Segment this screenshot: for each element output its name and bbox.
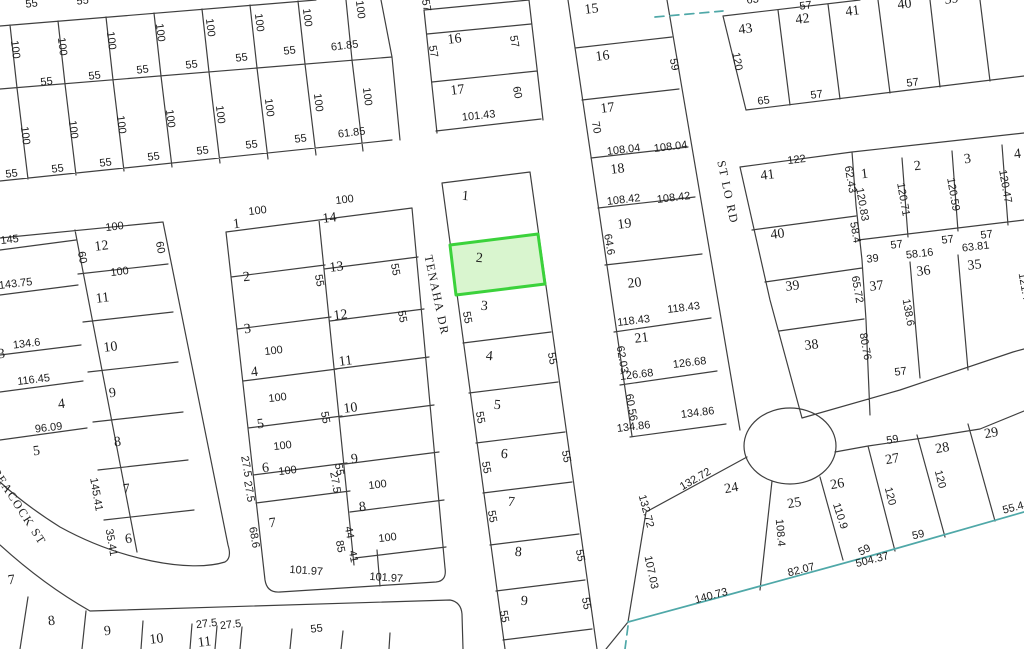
dimension-label: 60 [153, 240, 167, 254]
dimension-label: 57 [894, 365, 908, 378]
dimension-label: 55 [310, 622, 324, 635]
dimension-label: 44 [342, 525, 356, 539]
lot-number-label: 19 [617, 216, 633, 233]
lot-number-label: 12 [333, 307, 349, 324]
dimension-label: 57 [810, 88, 824, 101]
lot-number-label: 21 [634, 330, 650, 347]
lot-number-label: 3 [480, 299, 488, 315]
lot-number-label: 11 [338, 353, 353, 370]
dimension-label: 100 [335, 193, 355, 207]
dimension-label: 100 [353, 0, 367, 19]
dimension-label: 55 [294, 132, 308, 145]
lot-number-label: 5 [493, 398, 501, 414]
dimension-label: 100 [110, 265, 130, 279]
dimension-label: 57 [890, 238, 904, 251]
dimension-label: 100 [378, 531, 398, 545]
lot-number-label: 39 [785, 278, 801, 295]
dimension-label: 55 [136, 63, 150, 76]
dimension-label: 70 [589, 120, 603, 134]
dimension-label: 60 [510, 85, 524, 99]
dimension-label: 145 [0, 233, 19, 247]
lot-number-label: 8 [514, 545, 522, 561]
lot-number-label: 43 [738, 21, 754, 38]
lot-number-label: 26 [829, 476, 845, 493]
dimension-label: 65 [757, 94, 771, 107]
dimension-label: 100 [360, 87, 374, 107]
dimension-label: 55 [196, 144, 210, 157]
dimension-label: 100 [248, 204, 268, 218]
lot-number-label: 13 [329, 259, 345, 276]
dimension-label: 100 [18, 126, 32, 146]
dimension-label: 55 [88, 69, 102, 82]
dimension-label: 59 [885, 433, 899, 447]
lot-number-label: 17 [600, 100, 616, 117]
dimension-label: 59 [667, 57, 681, 71]
lot-number-label: 25 [786, 495, 802, 512]
dimension-label: 55 [40, 75, 54, 88]
dimension-label: 55 [51, 162, 65, 175]
dimension-label: 57 [941, 233, 955, 246]
lot-number-label: 40 [770, 226, 786, 243]
dimension-label: 55 [245, 138, 259, 151]
dimension-label: 55 [147, 150, 161, 163]
dimension-label: 100 [8, 40, 22, 60]
lot-number-label: 11 [95, 290, 110, 307]
lot-number-label: 2 [475, 251, 483, 267]
lot-number-label: 17 [450, 82, 466, 99]
dimension-label: 100 [368, 478, 388, 492]
dimension-label: 55 [497, 609, 511, 623]
lot-number-label: 16 [595, 48, 611, 65]
dimension-label: 55 [579, 596, 593, 610]
lot-number-label: 15 [584, 1, 600, 18]
lot-number-label: 28 [934, 440, 950, 457]
lot-number-label: 7 [507, 495, 515, 511]
dimension-label: 100 [153, 23, 167, 43]
lot-number-label: 27 [884, 451, 900, 468]
lot-number-label: 10 [343, 400, 359, 417]
dimension-label: 55 [479, 460, 493, 474]
dimension-label: 100 [264, 344, 284, 358]
lot-number-label: 4 [485, 349, 493, 365]
dimension-label: 100 [268, 391, 288, 405]
dimension-label: 57 [906, 76, 920, 89]
dimension-label: 100 [114, 115, 128, 135]
dimension-label: 55 [283, 44, 297, 57]
dimension-label: 55 [559, 449, 573, 463]
dimension-label: 100 [163, 109, 177, 129]
dimension-label: 55 [5, 167, 19, 180]
lot-number-label: 41 [760, 167, 776, 184]
dimension-label: 100 [273, 439, 293, 453]
lot-number-label: 1 [461, 189, 469, 205]
lot-number-label: 20 [627, 275, 643, 292]
dimension-label: 41 [346, 549, 360, 563]
lot-number-label: 16 [447, 31, 463, 48]
dimension-label: 60 [75, 250, 89, 264]
lot-number-label: 18 [610, 161, 626, 178]
dimension-label: 55 [485, 509, 499, 523]
dimension-label: 100 [213, 105, 227, 125]
dimension-label: 55 [318, 410, 332, 424]
dimension-label: 100 [104, 31, 118, 51]
dimension-label: 100 [311, 93, 325, 113]
dimension-label: 100 [262, 98, 276, 118]
highlighted-parcel-lot-2[interactable] [450, 234, 545, 295]
dimension-label: 55 [185, 58, 199, 71]
dimension-label: 55 [545, 351, 559, 365]
dimension-label: 101.97 [369, 571, 403, 585]
dimension-label: 100 [300, 8, 314, 28]
dimension-label: 55 [573, 548, 587, 562]
dimension-label: 55 [25, 0, 39, 11]
lot-number-label: 10 [103, 339, 119, 356]
dimension-label: 57 [507, 34, 521, 48]
lot-number-label: 40 [897, 0, 913, 13]
dimension-label: 39 [866, 252, 880, 265]
dimension-label: 101.97 [289, 564, 323, 578]
dimension-label: 55 [235, 51, 249, 64]
dimension-label: 122 [787, 153, 807, 167]
lot-number-label: 6 [500, 447, 508, 463]
dimension-label: 100 [55, 37, 69, 57]
dimension-label: 100 [278, 464, 298, 478]
lot-number-label: 37 [869, 278, 885, 295]
plat-map-viewport: 1617123456789114213312411510697812111039… [0, 0, 1024, 649]
lot-number-label: 42 [795, 11, 811, 28]
lot-number-label: 9 [520, 594, 528, 610]
dimension-label: 85 [333, 539, 347, 553]
dimension-label: 57 [980, 228, 994, 241]
lot-number-label: 36 [916, 263, 932, 280]
dimension-label: 55 [395, 309, 409, 323]
lot-number-label: 11 [197, 634, 212, 649]
lot-number-label: 12 [94, 238, 110, 255]
dimension-label: 55 [388, 262, 402, 276]
dimension-label: 100 [105, 220, 125, 234]
lot-number-label: 41 [845, 3, 861, 20]
parcel-map: 1617123456789114213312411510697812111039… [0, 0, 1024, 649]
dimension-label: 55 [473, 410, 487, 424]
dimension-label: 57 [426, 44, 440, 58]
dimension-label: 57 [419, 0, 433, 13]
dimension-label: 57 [799, 0, 813, 13]
dimension-label: 100 [66, 120, 80, 140]
lot-number-label: 29 [983, 425, 999, 442]
dimension-label: 55 [460, 310, 474, 324]
dimension-label: 108.4 [773, 519, 787, 547]
dimension-label: 55 [99, 156, 113, 169]
lot-number-label: 38 [804, 337, 820, 354]
lot-number-label: 14 [322, 210, 338, 227]
dimension-label: 55 [312, 273, 326, 287]
lot-number-label: 35 [967, 257, 983, 274]
lot-number-label: 10 [149, 631, 165, 648]
dimension-label: 100 [203, 18, 217, 38]
dimension-label: 100 [252, 13, 266, 33]
lot-number-label: 24 [723, 480, 739, 497]
